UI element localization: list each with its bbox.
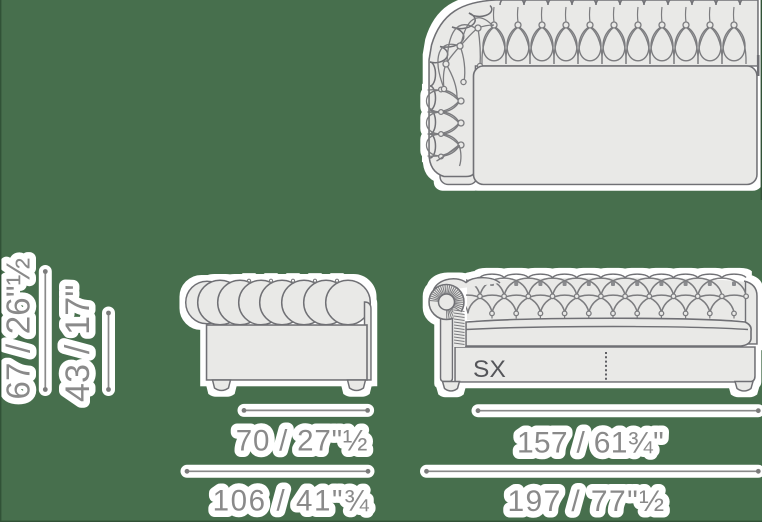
svg-text:SX: SX: [473, 356, 506, 383]
svg-text:157 / 61¾": 157 / 61¾": [517, 427, 664, 460]
svg-text:67 / 26"½: 67 / 26"½: [0, 258, 37, 400]
svg-text:197 / 77"½: 197 / 77"½: [507, 485, 665, 518]
svg-text:70 / 27"½: 70 / 27"½: [236, 425, 369, 458]
svg-text:106 / 41"¾: 106 / 41"¾: [213, 485, 371, 518]
svg-text:43 / 17": 43 / 17": [59, 284, 97, 402]
